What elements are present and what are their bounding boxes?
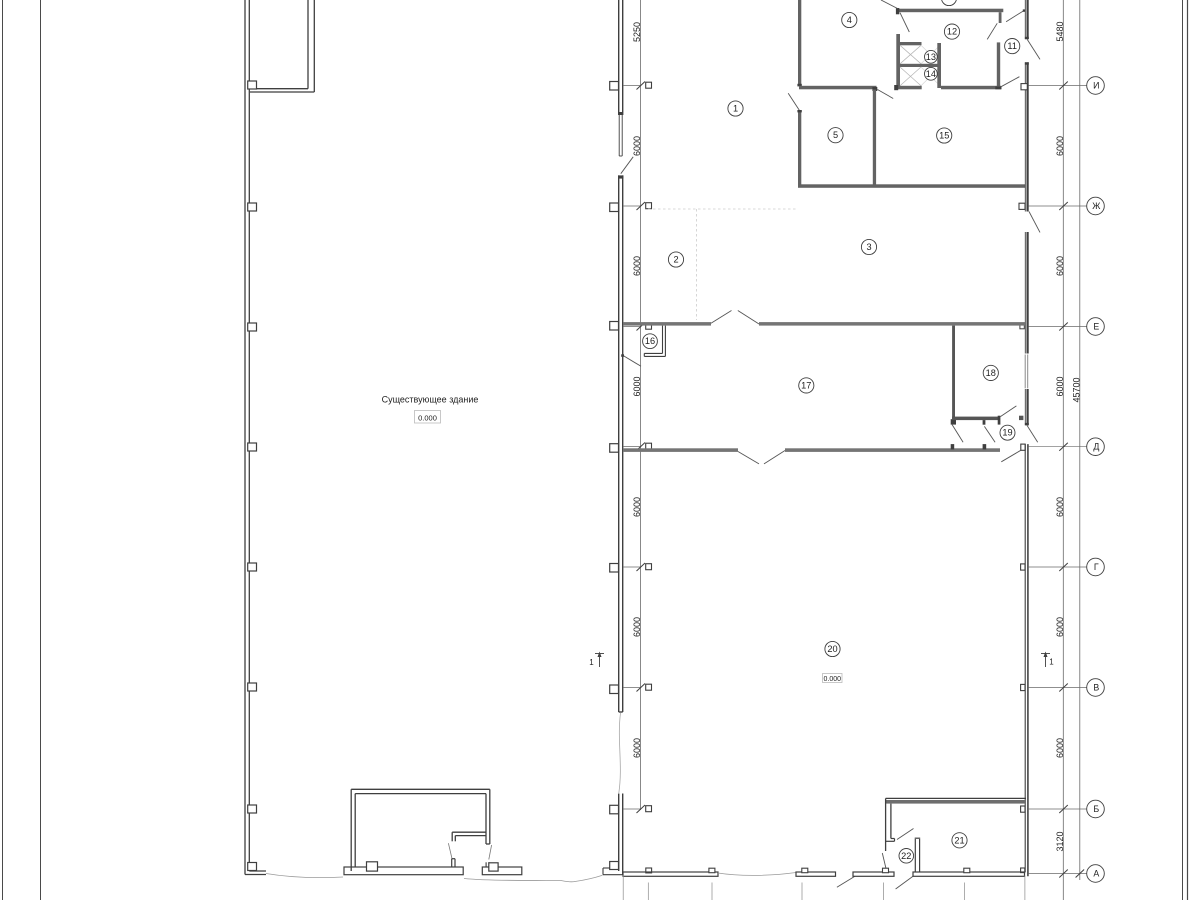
svg-text:13: 13 xyxy=(926,52,936,62)
svg-text:Б: Б xyxy=(1093,804,1099,814)
svg-text:1: 1 xyxy=(1049,658,1054,667)
svg-text:6000: 6000 xyxy=(1055,376,1065,396)
svg-text:18: 18 xyxy=(986,368,996,378)
svg-text:4: 4 xyxy=(847,15,852,25)
svg-text:6000: 6000 xyxy=(1055,738,1065,758)
svg-text:6000: 6000 xyxy=(1055,256,1065,276)
svg-text:19: 19 xyxy=(1002,428,1012,438)
svg-text:6000: 6000 xyxy=(632,376,642,396)
svg-text:21: 21 xyxy=(954,835,964,845)
svg-text:Г: Г xyxy=(1094,562,1099,572)
svg-text:6000: 6000 xyxy=(632,136,642,156)
svg-text:6000: 6000 xyxy=(632,738,642,758)
svg-text:0.000: 0.000 xyxy=(824,676,842,683)
svg-text:6000: 6000 xyxy=(632,617,642,637)
svg-text:6000: 6000 xyxy=(1055,617,1065,637)
svg-text:Ж: Ж xyxy=(1092,201,1100,211)
svg-text:17: 17 xyxy=(801,380,811,390)
svg-text:2: 2 xyxy=(673,255,678,265)
svg-text:11: 11 xyxy=(1007,41,1017,51)
svg-text:6000: 6000 xyxy=(1055,136,1065,156)
svg-text:6000: 6000 xyxy=(632,497,642,517)
svg-text:3120: 3120 xyxy=(1055,831,1065,851)
svg-text:В: В xyxy=(1093,683,1099,693)
svg-text:5250: 5250 xyxy=(632,22,642,42)
svg-text:22: 22 xyxy=(901,851,911,861)
svg-text:5: 5 xyxy=(833,130,838,140)
svg-text:Существующее здание: Существующее здание xyxy=(382,395,479,405)
svg-text:5480: 5480 xyxy=(1055,21,1065,41)
svg-text:45700: 45700 xyxy=(1072,377,1082,402)
svg-text:14: 14 xyxy=(926,69,936,79)
svg-text:16: 16 xyxy=(645,336,655,346)
svg-text:1: 1 xyxy=(589,658,594,667)
svg-text:0.000: 0.000 xyxy=(418,414,437,423)
svg-text:20: 20 xyxy=(827,644,837,654)
svg-text:И: И xyxy=(1093,81,1099,91)
svg-text:Д: Д xyxy=(1093,442,1099,452)
svg-text:Е: Е xyxy=(1093,322,1099,332)
svg-text:6000: 6000 xyxy=(1055,497,1065,517)
svg-text:12: 12 xyxy=(947,27,957,37)
svg-text:6000: 6000 xyxy=(632,256,642,276)
svg-text:3: 3 xyxy=(866,242,871,252)
svg-text:1: 1 xyxy=(733,104,738,114)
svg-text:15: 15 xyxy=(939,131,949,141)
svg-text:А: А xyxy=(1093,869,1099,879)
